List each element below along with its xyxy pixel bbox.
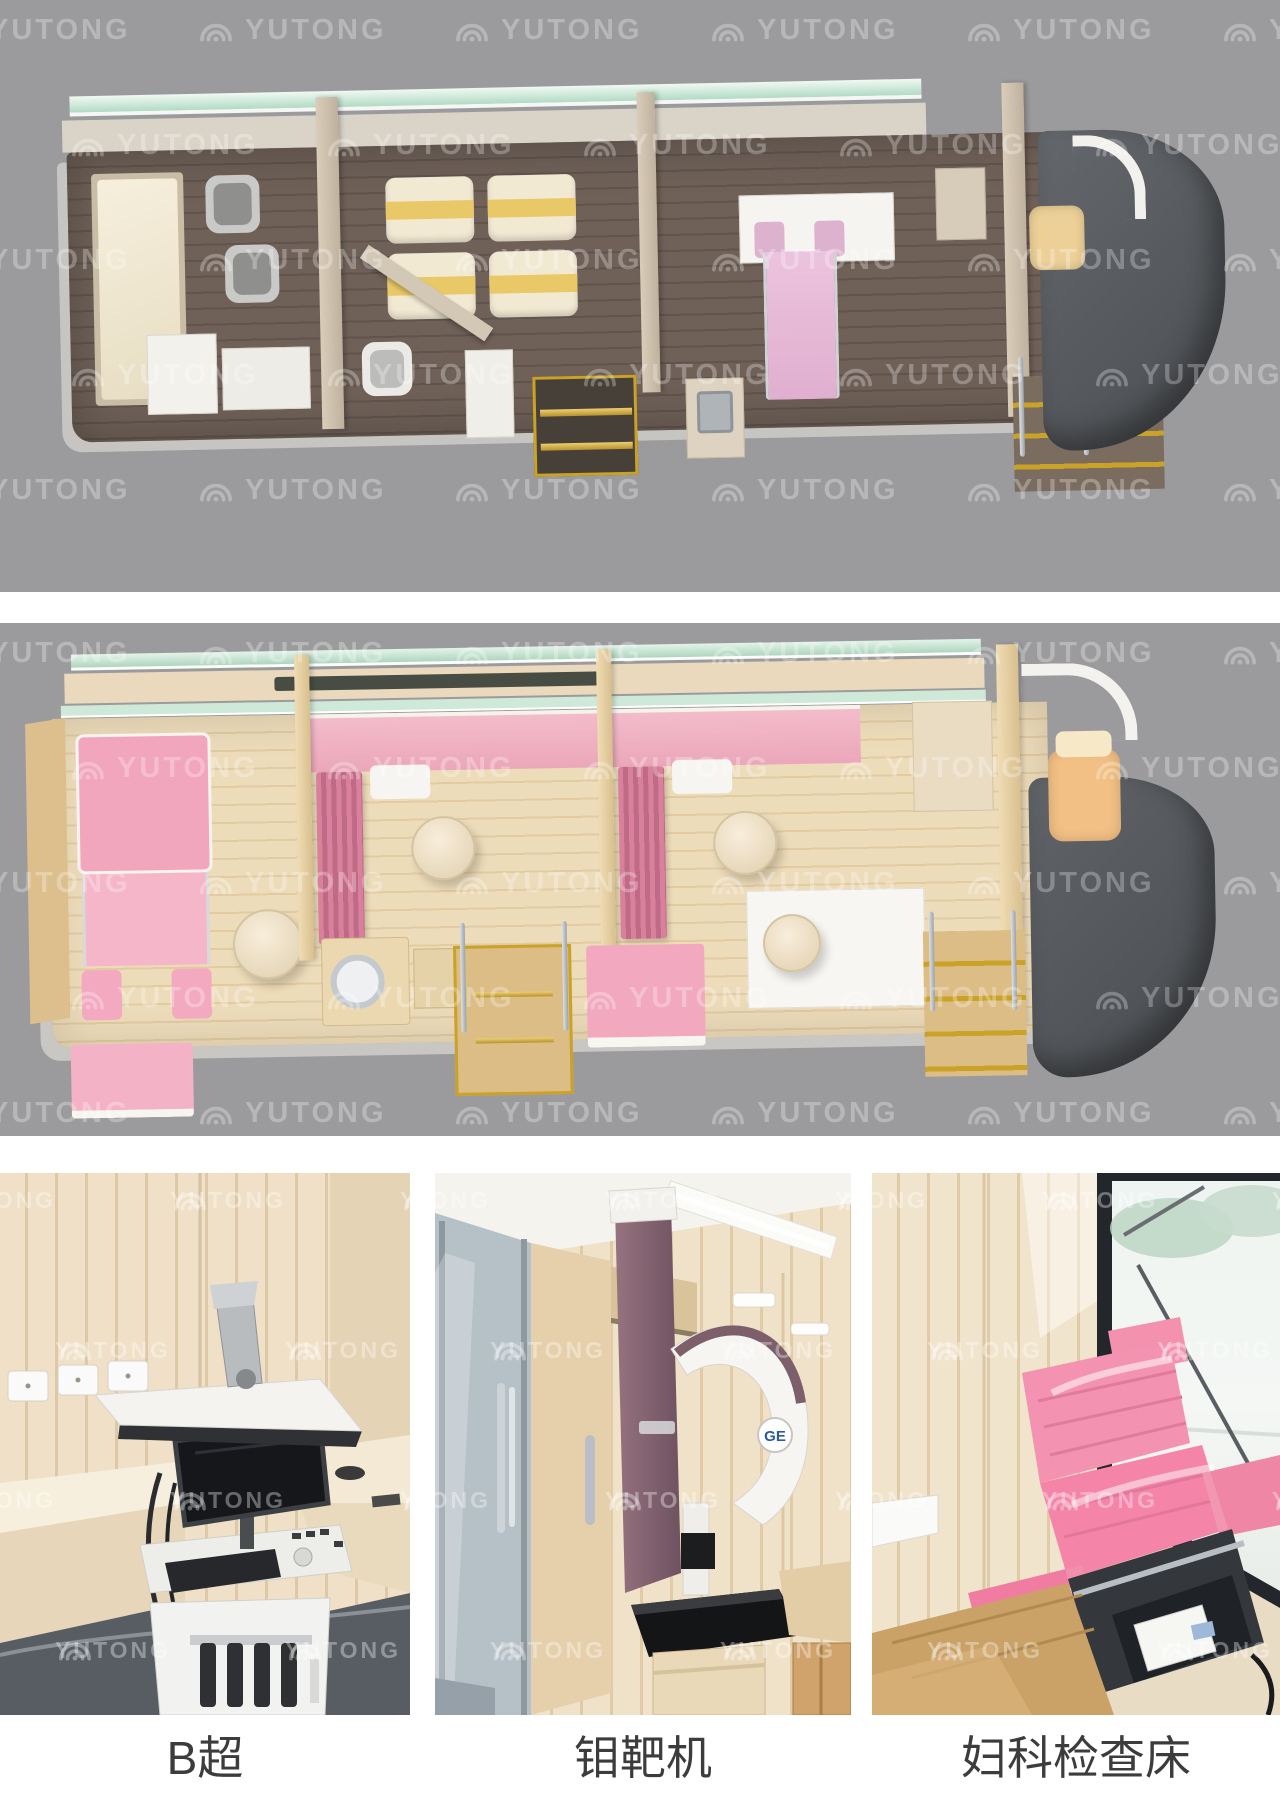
- grab-rail: [1021, 662, 1137, 742]
- equipment-photos-row: YUTONGYUTONGYUTONGYUTONGYUTONGYUTONGYUTO…: [0, 1173, 1280, 1715]
- yutong-watermark: YUTONG: [1220, 474, 1280, 507]
- yutong-watermark: YUTONG: [452, 474, 643, 507]
- washbasin-cabinet: [685, 377, 745, 458]
- yutong-arc-logo-icon: [964, 478, 1004, 504]
- yutong-watermark: YUTONG: [1220, 244, 1280, 277]
- yutong-arc-logo-icon: [196, 18, 236, 44]
- yutong-watermark: YUTONG: [196, 14, 387, 47]
- caption-ultrasound: B超: [0, 1722, 410, 1794]
- booth-table: [370, 764, 431, 799]
- yutong-watermark: YUTONG: [452, 14, 643, 47]
- privacy-curtain: [316, 772, 365, 945]
- caption-mammography: 钼靶机: [435, 1722, 851, 1794]
- yutong-watermark: YUTONG: [580, 589, 771, 592]
- yutong-watermark: YUTONG: [1220, 14, 1280, 47]
- yutong-arc-logo-icon: [708, 18, 748, 44]
- driver-seat: [1048, 748, 1122, 841]
- yutong-arc-logo-icon: [964, 18, 1004, 44]
- yutong-watermark: YUTONG: [1220, 637, 1280, 670]
- passenger-seat-bench: [487, 174, 578, 318]
- pink-bench: [71, 1043, 194, 1119]
- yutong-watermark: YUTONG: [708, 14, 899, 47]
- page: YUTONGYUTONGYUTONGYUTONGYUTONGYUTONGYUTO…: [0, 0, 1280, 1800]
- yutong-arc-logo-icon: [708, 478, 748, 504]
- office-chair: [225, 244, 280, 303]
- yutong-watermark: YUTONG: [0, 14, 131, 47]
- yutong-arc-logo-icon: [452, 478, 492, 504]
- photo-gyn-chair: YUTONGYUTONGYUTONGYUTONGYUTONGYUTONGYUTO…: [872, 1173, 1280, 1715]
- yutong-arc-logo-icon: [196, 478, 236, 504]
- photo-ultrasound: YUTONGYUTONGYUTONGYUTONGYUTONGYUTONGYUTO…: [0, 1173, 410, 1715]
- floorplan-panel-dark: YUTONGYUTONGYUTONGYUTONGYUTONGYUTONGYUTO…: [0, 0, 1280, 592]
- desk: [222, 347, 311, 411]
- office-chair: [362, 341, 413, 396]
- caption-gyn-chair: 妇科检查床: [872, 1722, 1280, 1794]
- side-bench: [25, 718, 70, 1024]
- brand-badge: GE: [764, 1428, 786, 1445]
- entry-steps: [532, 375, 638, 477]
- back-wall-pink: [302, 705, 861, 773]
- cabinet: [935, 167, 986, 240]
- bus-floorplan-dark: [51, 73, 1188, 457]
- stirrup-pad: [171, 968, 212, 1019]
- pink-exam-bed: [586, 944, 706, 1048]
- booth-table: [672, 759, 733, 794]
- yutong-arc-logo-icon: [1220, 478, 1260, 504]
- yutong-watermark: YUTONG: [196, 474, 387, 507]
- yutong-watermark: YUTONG: [836, 589, 1027, 592]
- bus-floorplan-pink: [16, 634, 1234, 1135]
- desk: [146, 333, 218, 414]
- entry-steps: [453, 944, 574, 1096]
- gyn-exam-chair: [754, 220, 848, 400]
- yutong-watermark: YUTONG: [964, 14, 1155, 47]
- yutong-watermark: YUTONG: [1092, 589, 1280, 592]
- photo-mammography: GE YUTONGYUTONGYUTONGYUTONGYUTONGYUTONGY…: [435, 1173, 851, 1715]
- office-chair: [205, 175, 260, 234]
- yutong-watermark: YUTONG: [708, 474, 899, 507]
- yutong-arc-logo-icon: [452, 18, 492, 44]
- privacy-curtain: [618, 766, 667, 939]
- yutong-arc-logo-icon: [1220, 18, 1260, 44]
- front-entry-steps: [923, 930, 1028, 1077]
- floorplan-panel-pink: YUTONGYUTONGYUTONGYUTONGYUTONGYUTONGYUTO…: [0, 623, 1280, 1136]
- yutong-watermark: YUTONG: [0, 474, 131, 507]
- washbasin-cabinet: [321, 937, 411, 1027]
- yutong-watermark: YUTONG: [68, 589, 259, 592]
- sink: [697, 391, 734, 434]
- round-sink: [330, 954, 385, 1009]
- yutong-watermark: YUTONG: [324, 589, 515, 592]
- glass-door: [435, 1213, 611, 1715]
- roof-vent: [274, 671, 604, 691]
- desk: [465, 349, 515, 438]
- cab-cabinet: [912, 701, 994, 812]
- gyn-exam-chair: [75, 732, 215, 1024]
- yutong-arc-logo-icon: [1220, 248, 1260, 274]
- stirrup-pad: [81, 970, 122, 1021]
